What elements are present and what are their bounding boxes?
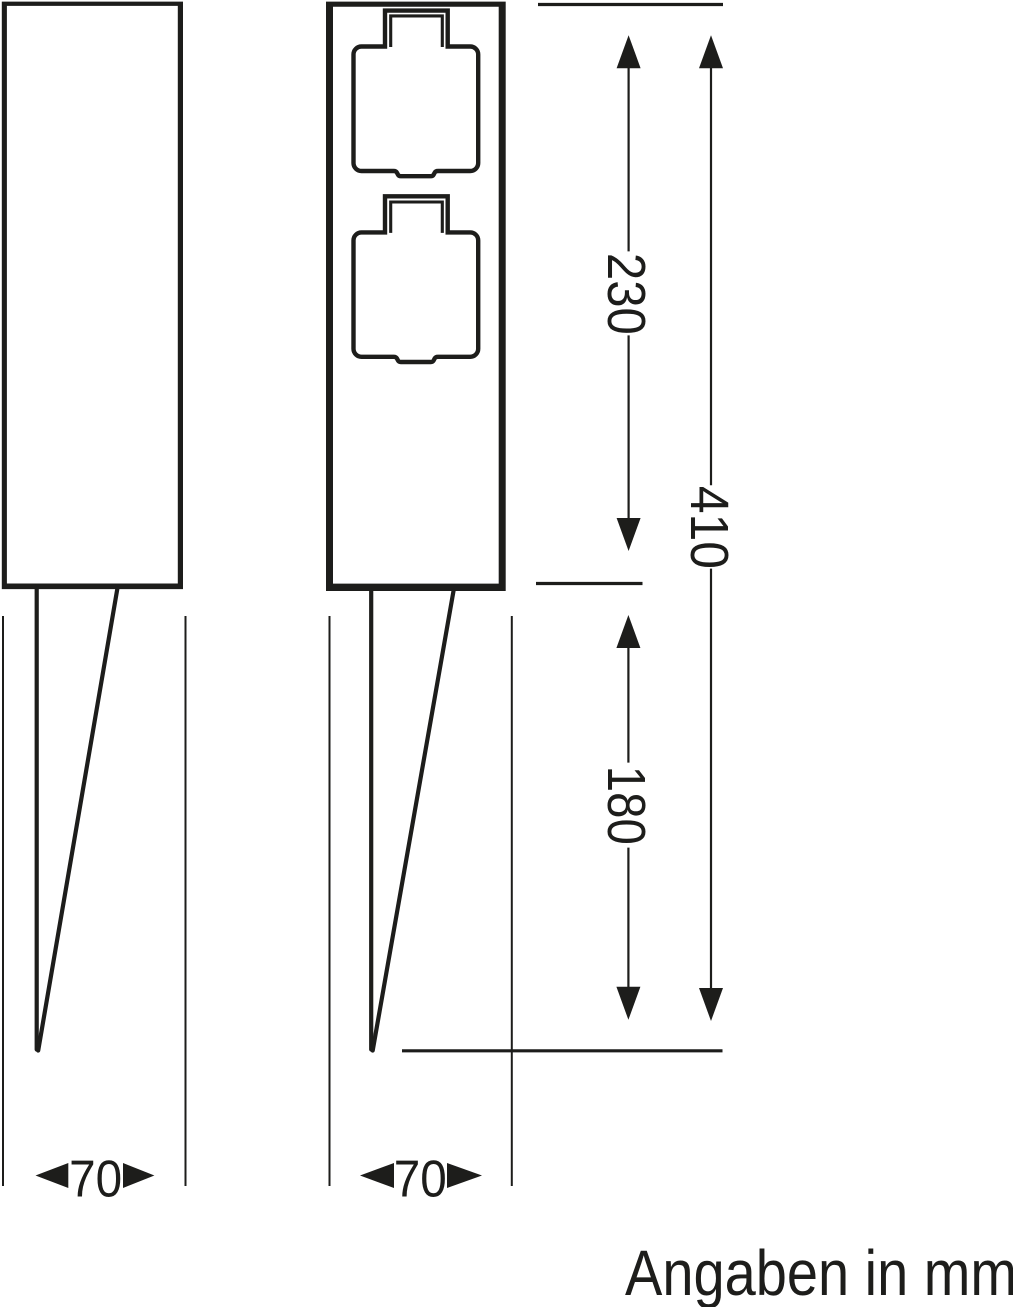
svg-text:Angaben in mm: Angaben in mm xyxy=(625,1237,1013,1307)
svg-text:70: 70 xyxy=(69,1150,122,1208)
svg-text:70: 70 xyxy=(394,1150,447,1208)
svg-text:180: 180 xyxy=(596,766,656,845)
svg-text:410: 410 xyxy=(679,486,739,569)
svg-text:230: 230 xyxy=(596,253,656,335)
